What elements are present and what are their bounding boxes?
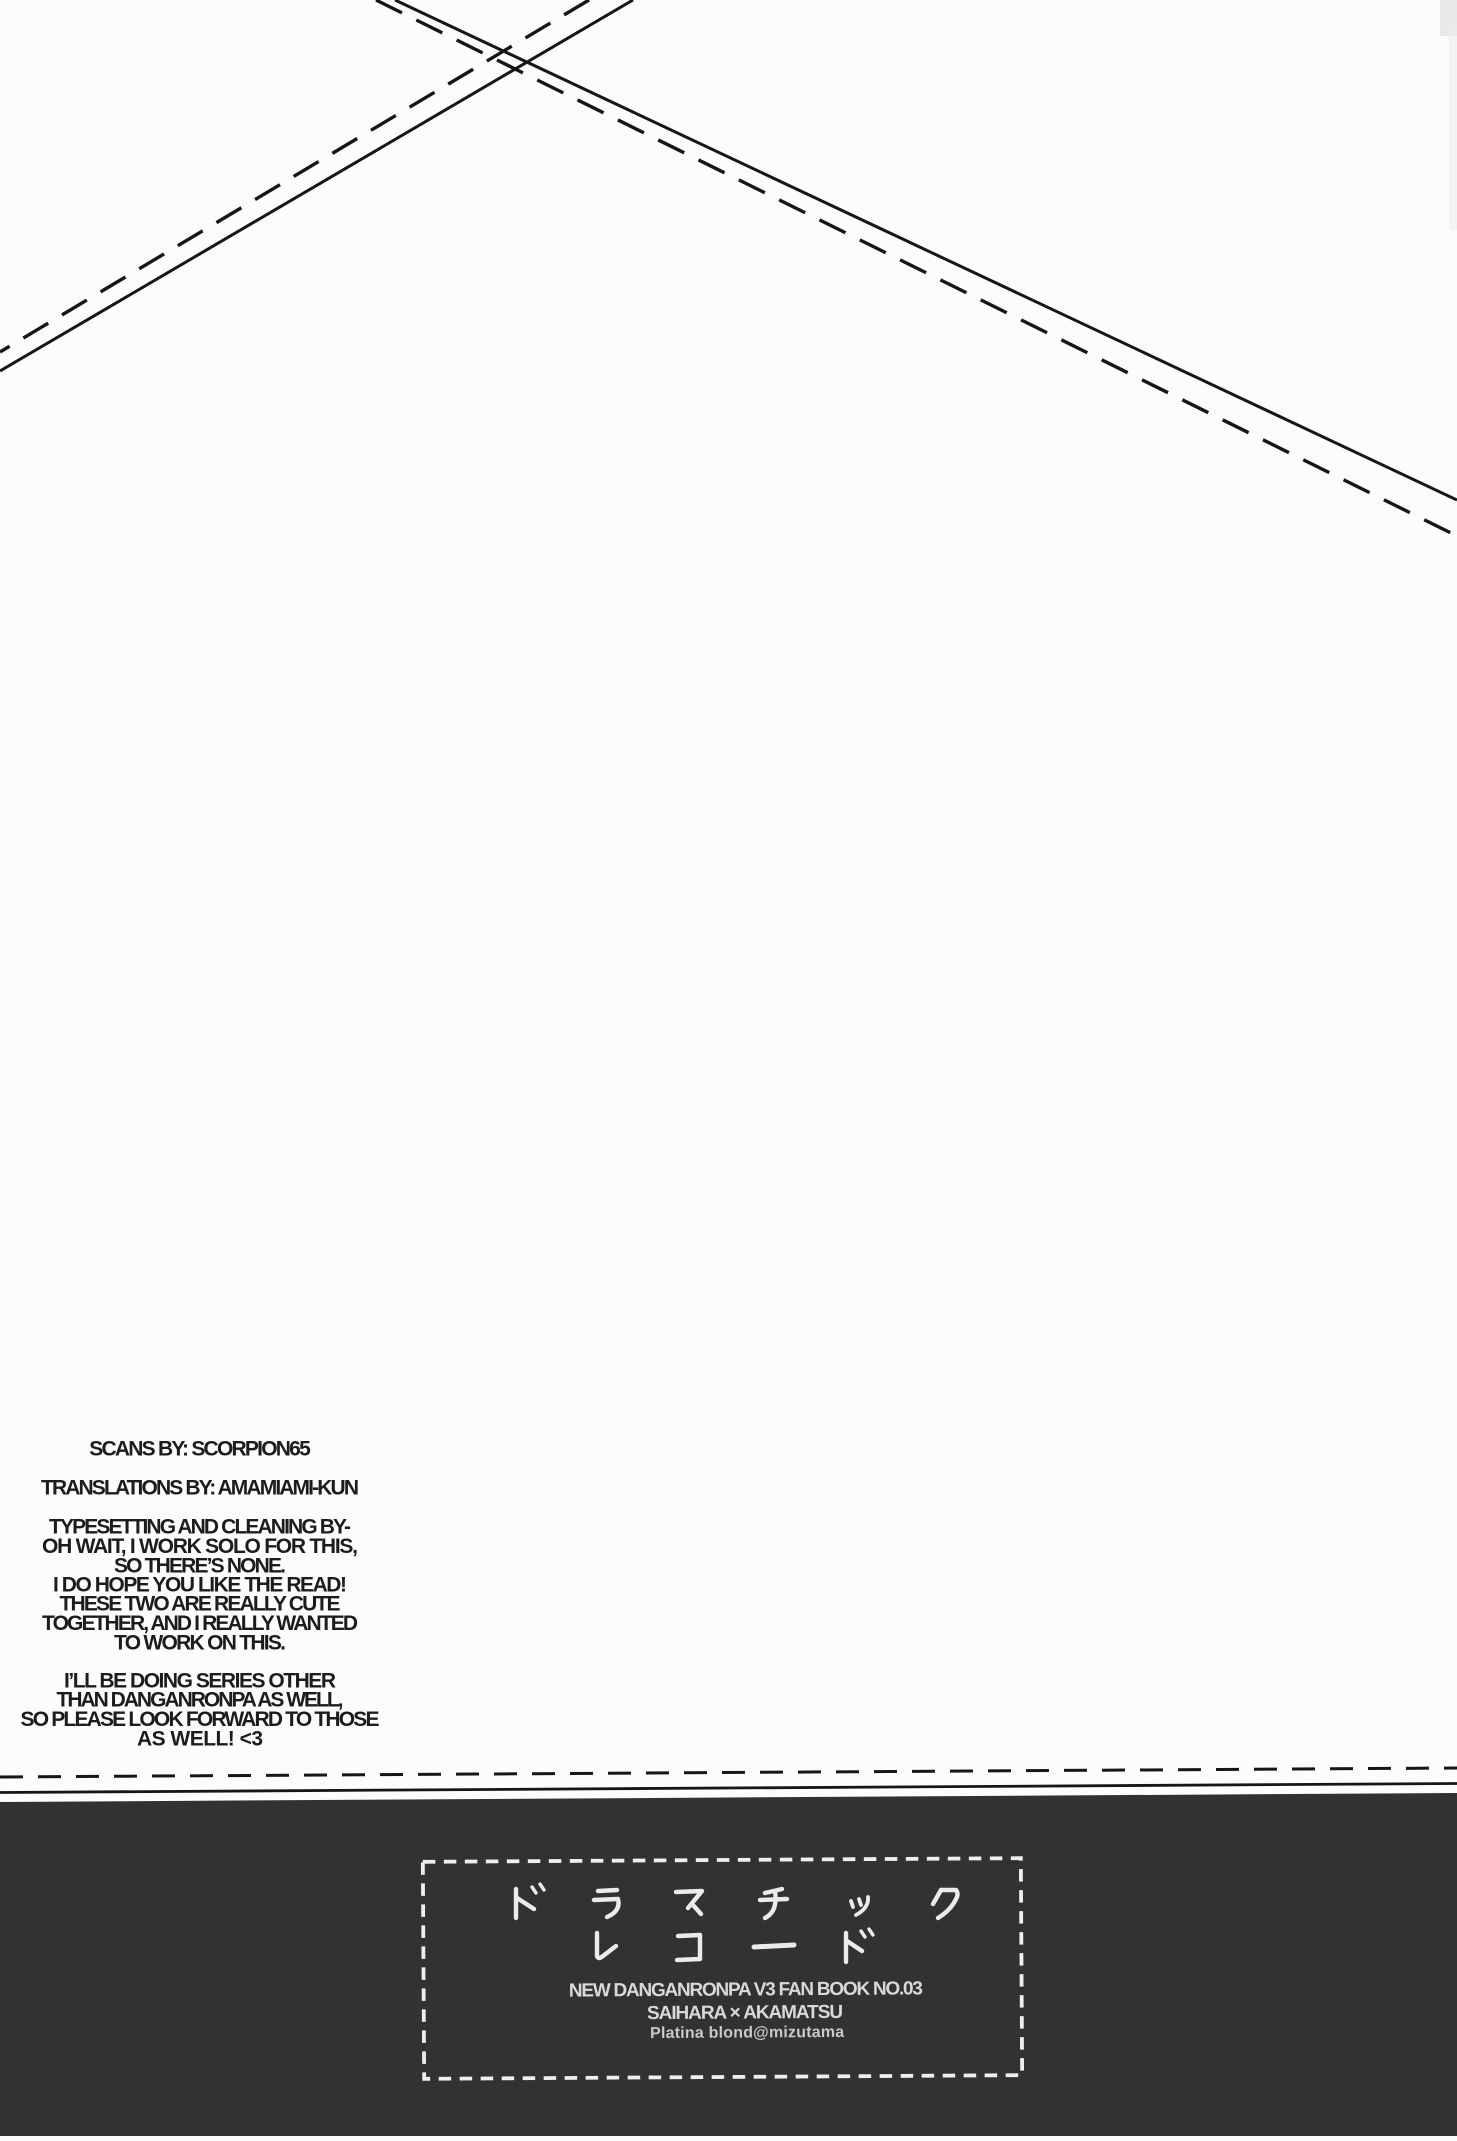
svg-text:NEW DANGANRONPA V3 FAN BOOK NO: NEW DANGANRONPA V3 FAN BOOK NO.03 bbox=[569, 1978, 923, 2001]
svg-text:AS WELL! <3: AS WELL! <3 bbox=[137, 1728, 263, 1751]
svg-text:SAIHARA × AKAMATSU: SAIHARA × AKAMATSU bbox=[647, 2002, 843, 2024]
svg-text:Platina blond@mizutama: Platina blond@mizutama bbox=[650, 2024, 844, 2042]
svg-text:SCANS BY: SCORPION65: SCANS BY: SCORPION65 bbox=[89, 1438, 311, 1461]
svg-text:TO WORK ON THIS.: TO WORK ON THIS. bbox=[114, 1632, 286, 1655]
svg-text:TRANSLATIONS BY: AMAMIAMI-KUN: TRANSLATIONS BY: AMAMIAMI-KUN bbox=[41, 1477, 359, 1500]
